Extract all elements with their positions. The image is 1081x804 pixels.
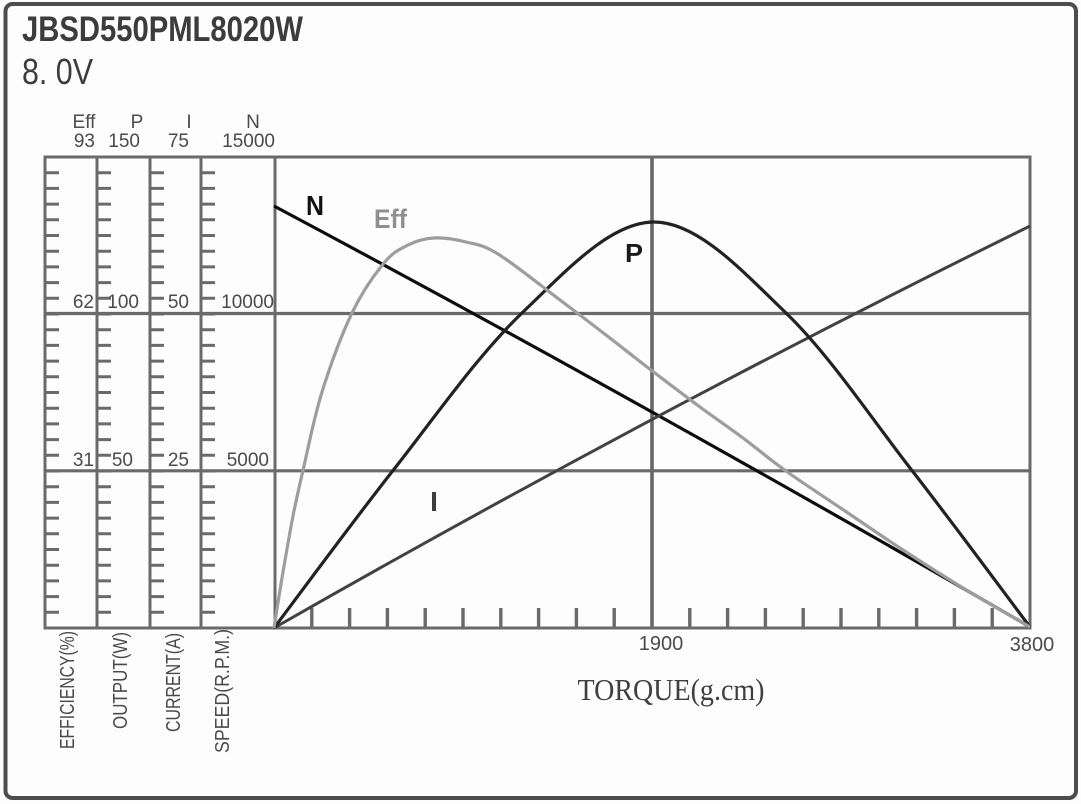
svg-text:I: I [186,112,191,133]
svg-text:OUTPUT(W): OUTPUT(W) [110,632,132,729]
svg-text:10000: 10000 [221,292,274,313]
svg-text:31: 31 [73,450,94,471]
svg-text:N: N [306,190,324,221]
svg-text:P: P [131,112,144,133]
svg-text:1900: 1900 [639,633,684,655]
svg-text:25: 25 [168,450,189,471]
svg-text:8. 0V: 8. 0V [22,51,93,92]
svg-text:75: 75 [168,131,189,152]
svg-text:TORQUE(g.cm): TORQUE(g.cm) [578,672,765,707]
svg-text:50: 50 [168,292,189,313]
svg-text:EFFICIENCY(%): EFFICIENCY(%) [57,631,79,749]
svg-text:62: 62 [73,292,94,313]
svg-text:SPEED(R.P.M.): SPEED(R.P.M.) [212,629,234,753]
svg-text:5000: 5000 [227,450,269,471]
svg-text:50: 50 [112,450,133,471]
svg-text:93: 93 [74,131,95,152]
svg-text:I: I [430,486,438,517]
svg-text:150: 150 [108,131,140,152]
svg-text:Eff: Eff [374,204,408,234]
svg-text:3800: 3800 [1010,634,1055,656]
svg-text:100: 100 [107,292,139,313]
svg-text:15000: 15000 [222,131,275,152]
svg-text:N: N [246,112,260,133]
svg-text:P: P [625,238,643,268]
svg-text:JBSD550PML8020W: JBSD550PML8020W [22,10,303,49]
svg-text:Eff: Eff [73,112,97,133]
svg-text:CURRENT(A): CURRENT(A) [163,633,185,732]
